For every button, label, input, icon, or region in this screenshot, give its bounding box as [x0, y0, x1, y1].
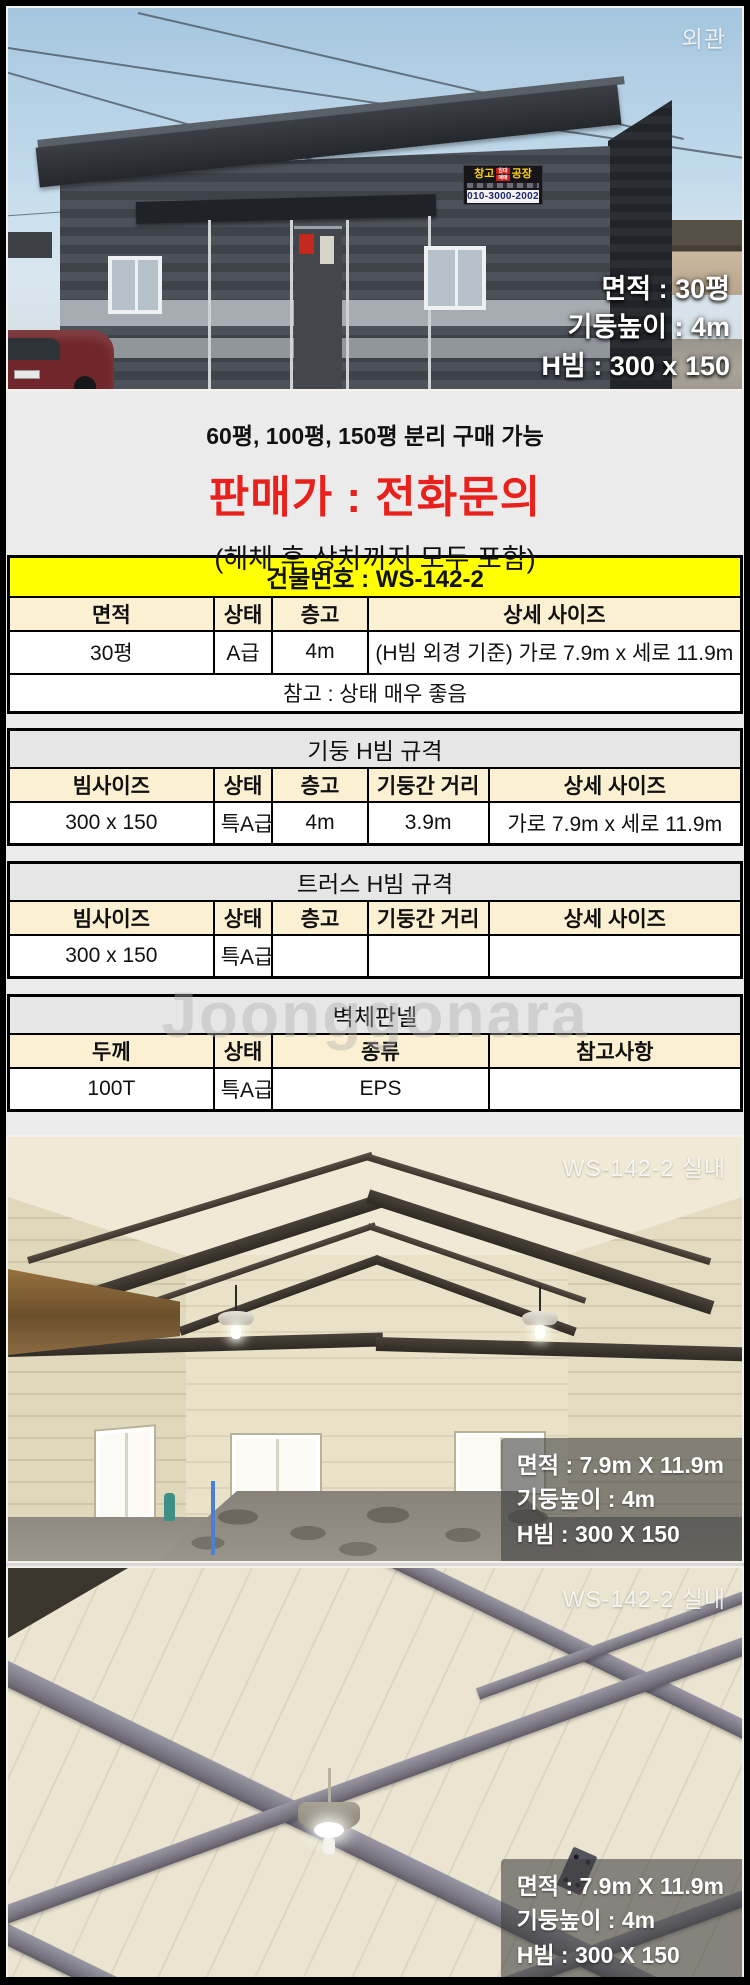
- header-cell: 빔사이즈: [9, 768, 214, 802]
- header-cell: 층고: [272, 901, 367, 935]
- wall-panel-table: 벽체판넬 두께 상태 종류 참고사항 100T 특A급 EPS: [7, 994, 743, 1112]
- purchase-option-text: 60평, 100평, 150평 분리 구매 가능: [6, 417, 744, 451]
- door-rail: [208, 220, 211, 391]
- sign-small-text-strip: [467, 183, 539, 188]
- spec-hbeam: H빔 : 300 X 150: [517, 1517, 724, 1552]
- data-cell: 100T: [9, 1068, 214, 1111]
- back-corner-column-left: [182, 1323, 191, 1525]
- header-cell: 기둥간 거리: [368, 768, 489, 802]
- sign-badge-rent: 임대: [496, 168, 509, 174]
- column-beam-table: 기둥 H빔 규격 빔사이즈 상태 층고 기둥간 거리 상세 사이즈 300 x …: [7, 728, 743, 846]
- spec-hbeam: H빔 : 300 X 150: [517, 1938, 724, 1973]
- blue-pipe: [211, 1481, 215, 1555]
- warehouse-sale-sign: 창고 임대 매매 공장 010-3000-2002: [463, 165, 543, 205]
- truss-beam-table: 트러스 H빔 규격 빔사이즈 상태 층고 기둥간 거리 상세 사이즈 300 x…: [7, 861, 743, 979]
- data-cell: A급: [214, 631, 273, 674]
- building-info-table: 건물번호 : WS-142-2 면적 상태 층고 상세 사이즈 30평 A급 4…: [7, 555, 743, 714]
- data-cell: [272, 935, 367, 978]
- exterior-photo: 창고 임대 매매 공장 010-3000-2002 외관 면적 : 30평 기둥…: [6, 6, 744, 391]
- photo-caption-interior-2: WS-142-2 실내: [563, 1580, 726, 1614]
- header-cell: 상세 사이즈: [489, 901, 742, 935]
- header-cell: 면적: [9, 597, 214, 631]
- interior-spec-overlay: 면적 : 7.9m X 11.9m 기둥높이 : 4m H빔 : 300 X 1…: [501, 1438, 742, 1562]
- header-cell: 종류: [272, 1034, 488, 1068]
- data-cell: (H빔 외경 기준) 가로 7.9m x 세로 11.9m: [368, 631, 742, 674]
- data-cell: 특A급: [214, 802, 273, 845]
- sign-badge-sale: 매매: [496, 175, 509, 181]
- spec-column-height: 기둥높이 : 4m: [542, 308, 730, 346]
- building-number-header: 건물번호 : WS-142-2: [9, 557, 742, 597]
- data-cell: 300 x 150: [9, 935, 214, 978]
- car-wheel: [74, 376, 96, 391]
- truss-beam-table-wrap: 트러스 H빔 규격 빔사이즈 상태 층고 기둥간 거리 상세 사이즈 300 x…: [6, 861, 744, 979]
- sign-word-right: 공장: [512, 169, 532, 180]
- data-cell: 3.9m: [368, 802, 489, 845]
- sale-info-section: 60평, 100평, 150평 분리 구매 가능 판매가 : 전화문의 (해체 …: [6, 391, 744, 555]
- door-rail: [346, 220, 349, 391]
- column-beam-title: 기둥 H빔 규격: [9, 730, 742, 768]
- ceiling-photo: WS-142-2 실내 면적 : 7.9m X 11.9m 기둥높이 : 4m …: [6, 1566, 744, 1984]
- wall-panel-table-wrap: 벽체판넬 두께 상태 종류 참고사항 100T 특A급 EPS: [6, 994, 744, 1112]
- truss-beam-title: 트러스 H빔 규격: [9, 863, 742, 901]
- header-cell: 상세 사이즈: [489, 768, 742, 802]
- spec-column-height: 기둥높이 : 4m: [517, 1903, 724, 1938]
- column-beam-table-wrap: 기둥 H빔 규격 빔사이즈 상태 층고 기둥간 거리 상세 사이즈 300 x …: [6, 728, 744, 846]
- door-sticker: [320, 236, 334, 264]
- header-cell: 상태: [214, 768, 273, 802]
- price-text: 판매가 : 전화문의: [6, 461, 744, 525]
- spec-area: 면적 : 7.9m X 11.9m: [517, 1448, 724, 1483]
- center-back-column: [372, 1257, 384, 1527]
- header-cell: 상태: [214, 901, 273, 935]
- data-cell: [489, 935, 742, 978]
- spec-area: 면적 : 7.9m X 11.9m: [517, 1869, 724, 1904]
- spec-area: 면적 : 30평: [542, 270, 730, 308]
- car-window: [6, 338, 60, 360]
- hanging-lamp: [520, 1285, 560, 1339]
- interior-photo: WS-142-2 실내 면적 : 7.9m X 11.9m 기둥높이 : 4m …: [6, 1135, 744, 1563]
- data-cell: 4m: [272, 631, 367, 674]
- sign-phone-number: 010-3000-2002: [467, 190, 539, 203]
- data-cell: [368, 935, 489, 978]
- header-cell: 층고: [272, 597, 367, 631]
- header-cell: 두께: [9, 1034, 214, 1068]
- gas-cylinder: [164, 1493, 175, 1521]
- building-table-wrap: 건물번호 : WS-142-2 면적 상태 층고 상세 사이즈 30평 A급 4…: [6, 555, 744, 714]
- exterior-window: [108, 256, 162, 314]
- hanging-lamp: [216, 1285, 256, 1339]
- background-roof: [8, 232, 52, 258]
- ceiling-spec-overlay: 면적 : 7.9m X 11.9m 기둥높이 : 4m H빔 : 300 X 1…: [501, 1859, 742, 1983]
- data-cell: 30평: [9, 631, 214, 674]
- data-cell: EPS: [272, 1068, 488, 1111]
- header-cell: 층고: [272, 768, 367, 802]
- data-cell: 특A급: [214, 1068, 273, 1111]
- interior-window-left-wall: [96, 1426, 154, 1523]
- header-cell: 상세 사이즈: [368, 597, 742, 631]
- sign-word-left: 창고: [474, 169, 494, 180]
- data-cell: 300 x 150: [9, 802, 214, 845]
- photo-caption-interior-1: WS-142-2 실내: [563, 1149, 726, 1183]
- photo-caption-exterior: 외관: [682, 20, 726, 54]
- header-cell: 빔사이즈: [9, 901, 214, 935]
- header-cell: 상태: [214, 597, 273, 631]
- door-rail: [290, 220, 293, 391]
- header-cell: 기둥간 거리: [368, 901, 489, 935]
- door-small-sign: [299, 234, 314, 254]
- wall-panel-title: 벽체판넬: [9, 996, 742, 1034]
- roof-purlin: [27, 1152, 373, 1264]
- hanging-lamp: [294, 1768, 364, 1854]
- condition-note: 참고 : 상태 매우 좋음: [9, 674, 742, 713]
- interior-window-back-left: [232, 1435, 320, 1497]
- exterior-spec-overlay: 면적 : 30평 기둥높이 : 4m H빔 : 300 x 150: [542, 270, 730, 385]
- data-cell: [489, 1068, 742, 1111]
- data-cell: 가로 7.9m x 세로 11.9m: [489, 802, 742, 845]
- car-license-plate: [14, 370, 40, 379]
- parked-car: [6, 330, 114, 391]
- exterior-window: [424, 246, 486, 310]
- listing-page: 창고 임대 매매 공장 010-3000-2002 외관 면적 : 30평 기둥…: [0, 0, 750, 1985]
- header-cell: 상태: [214, 1034, 273, 1068]
- spec-column-height: 기둥높이 : 4m: [517, 1482, 724, 1517]
- data-cell: 특A급: [214, 935, 273, 978]
- ceiling-dark-corner: [8, 1568, 128, 1638]
- header-cell: 참고사항: [489, 1034, 742, 1068]
- data-cell: 4m: [272, 802, 367, 845]
- spec-hbeam: H빔 : 300 x 150: [542, 347, 730, 385]
